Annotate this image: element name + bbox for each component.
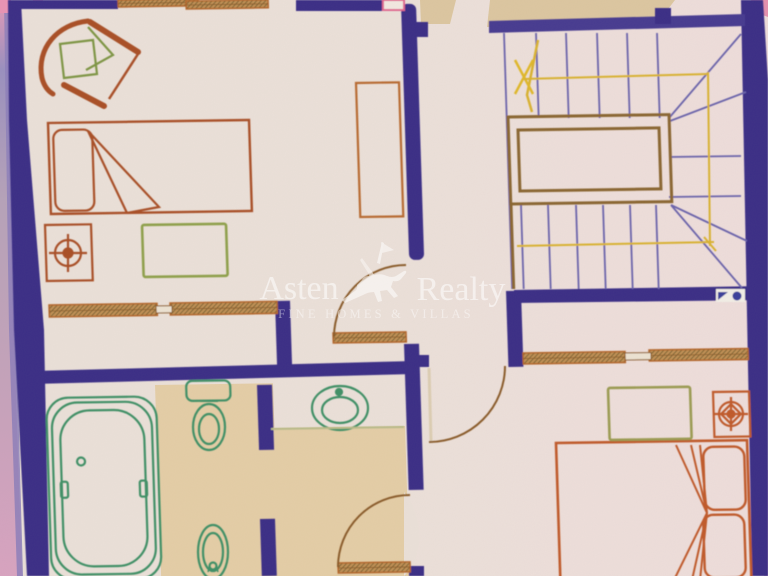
svg-text:FINE HOMES & VILLAS: FINE HOMES & VILLAS — [278, 307, 474, 321]
svg-text:Realty: Realty — [417, 271, 506, 308]
svg-text:Asten: Asten — [259, 270, 338, 307]
